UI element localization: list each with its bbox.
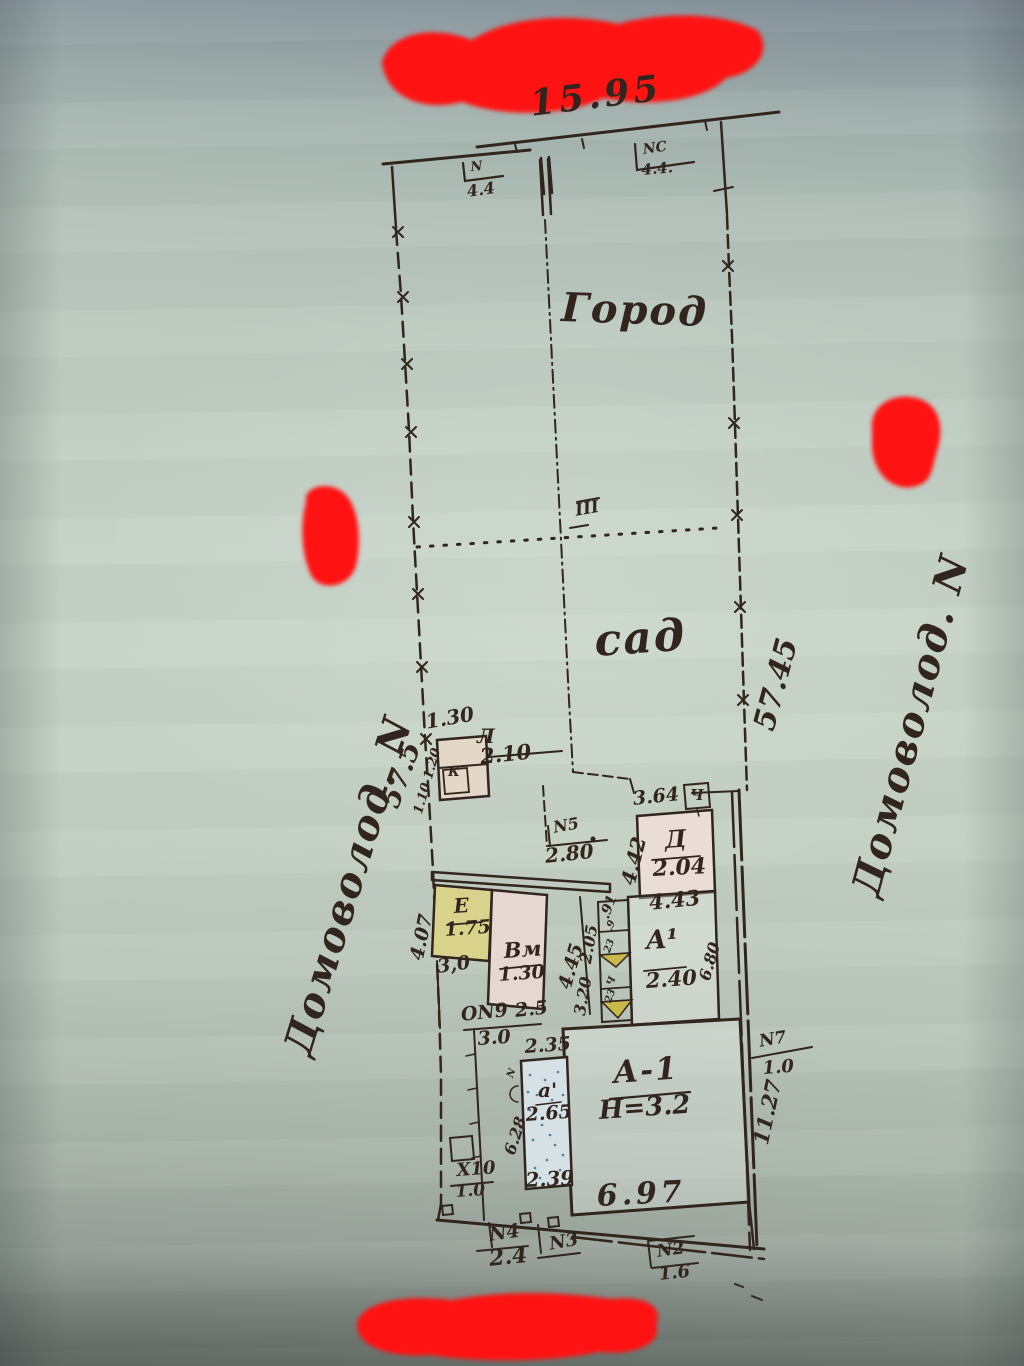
gate-n5-label: N5 — [552, 816, 580, 836]
bldg-a-small-top-dim: 2.35 — [524, 1035, 571, 1057]
gate-n9-label: ОN9 — [460, 1001, 509, 1025]
gate-n5-dim: 2.80 — [544, 841, 595, 866]
gate-n-label: N — [470, 160, 483, 174]
gate-nc-dim: 4.4. — [641, 160, 674, 178]
redaction-left — [302, 486, 359, 585]
bldg-a-small-height: 2.65 — [525, 1103, 572, 1125]
bldg-d-height: 2.04 — [652, 855, 707, 880]
bldg-l-inner-mark: К — [448, 766, 460, 779]
bldg-e-height: 1.75 — [444, 918, 491, 940]
bldg-a-small-label: а' — [538, 1080, 557, 1100]
gate-n4-label: N4 — [488, 1222, 521, 1245]
redaction-right — [872, 397, 940, 488]
bldg-a1-bottom-dim: 6.97 — [596, 1177, 687, 1212]
bldg-a1-height-note: Н=3.2 — [598, 1092, 691, 1124]
bldg-d-top-dim: 3.64 — [632, 785, 680, 809]
annex-top-dim: 4.43 — [648, 887, 701, 913]
gate-x10-label: X10 — [456, 1159, 496, 1180]
bldg-e-below-dim: 3,0 — [436, 953, 471, 976]
photographed-plan-sheet: 15.95 N 4.4 NC 4.4. Город III сад 57.45 … — [0, 0, 1024, 1366]
gate-n-dim: 4.4 — [466, 180, 496, 200]
bldg-vm-height: 1.30 — [498, 963, 545, 985]
bldg-d-box-mark: Ч — [690, 788, 704, 803]
gate-n9-dim: 2.5 — [514, 999, 549, 1021]
vegetable-garden-label: Город — [561, 288, 709, 333]
gate-x10-dim: 1.0 — [455, 1182, 486, 1201]
bldg-a-small-bottom-dim: 2.39 — [525, 1167, 575, 1190]
redaction-bottom — [357, 1293, 658, 1360]
gate-n4-dim: 2.4 — [488, 1244, 528, 1270]
bldg-a1-label: А-1 — [612, 1053, 680, 1089]
orchard-label: сад — [593, 614, 688, 664]
section-mark: III — [574, 499, 600, 520]
gate-nc-label: NC — [642, 140, 668, 157]
bldg-d-label: Д — [664, 827, 687, 852]
annex-label: А¹ — [645, 926, 679, 954]
redaction-layer — [0, 0, 1024, 1366]
bldg-e-label: Е — [453, 895, 470, 916]
gate-n2-label: N2 — [656, 1240, 685, 1261]
gate-n3-label: N3 — [548, 1231, 580, 1254]
gate-n7-dim: 1.0 — [762, 1058, 795, 1078]
yard-dim: 3.0 — [477, 1028, 511, 1049]
bldg-vm-label: Вм — [503, 937, 542, 961]
gate-n7-label: N7 — [758, 1029, 788, 1050]
annex-height: 2.40 — [645, 966, 697, 991]
gate-n2-dim: 1.6 — [658, 1263, 691, 1284]
bldg-l-height: 2.10 — [479, 741, 532, 767]
